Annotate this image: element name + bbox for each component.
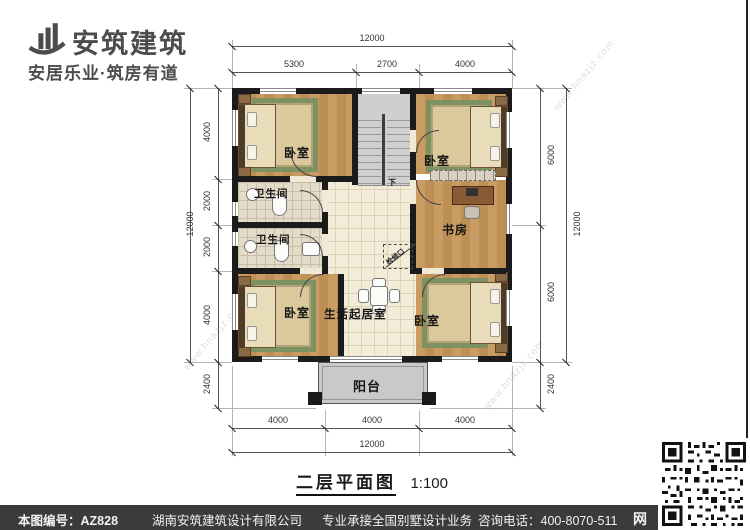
window (232, 232, 238, 246)
page-edge-line (746, 0, 748, 438)
stair-flight-right (387, 120, 410, 185)
nightstand (495, 167, 508, 177)
desk-chair (464, 206, 480, 219)
footer-bar: 本图编号：AZ828 湖南安筑建筑设计有限公司 专业承接全国别墅设计业务 咨询电… (0, 505, 750, 530)
company-name: 湖南安筑建筑设计有限公司 (152, 510, 302, 529)
balcony: 阳台 (318, 362, 428, 404)
dimension-line-bottom-total (232, 452, 512, 453)
dim-bottom-seg: 4000 (248, 415, 308, 425)
nightstand (238, 276, 251, 286)
window (506, 112, 512, 148)
brand-tagline: 安居乐业·筑房有道 (28, 59, 179, 84)
dim-right-total: 12000 (572, 194, 582, 254)
dim-left-seg: 4000 (202, 285, 212, 345)
room-label-bedroom-tr: 卧室 (424, 152, 450, 169)
drawing-title: 二层平面图 (296, 473, 396, 496)
drawing-number: 本图编号：AZ828 (18, 510, 118, 529)
floor-plan: 检修口 卧室 卫生间 卫生间 卧室 生活起居室 卧室 书房 卧室 下 (232, 88, 512, 362)
phone-text: 咨询电话：400-8070-511 (478, 510, 617, 529)
dimension-line-bottom-segments (232, 428, 512, 429)
extension-line (325, 410, 326, 456)
dim-top-seg: 4000 (435, 59, 495, 69)
dim-right-below: 2400 (546, 354, 556, 414)
window (506, 290, 512, 326)
extension-line (419, 64, 420, 88)
dim-top-total: 12000 (342, 33, 402, 43)
brand-name: 安筑建筑 (72, 22, 188, 61)
bed-top-right (470, 106, 508, 168)
stair-flight-left (358, 120, 381, 185)
dimension-line-top-segments (232, 72, 512, 73)
service-text: 专业承接全国别墅设计业务 (322, 510, 472, 529)
bed-top-left (238, 104, 276, 168)
dim-bottom-total: 12000 (342, 439, 402, 449)
stair-down-label: 下 (388, 177, 396, 188)
dimension-line-right-segments (540, 88, 541, 408)
qr-code (658, 438, 750, 530)
bed-bottom-left (238, 286, 276, 348)
stair-rail (382, 114, 385, 185)
window (232, 294, 238, 330)
dim-right-seg: 6000 (546, 125, 556, 185)
dim-left-total: 12000 (185, 194, 195, 254)
extension-line (212, 271, 232, 272)
extension-line (212, 225, 232, 226)
dimension-line-left-segments (218, 88, 219, 408)
dimension-line-right-total (566, 88, 567, 362)
web-glyph: 网 (633, 509, 647, 529)
balcony-pier (422, 392, 436, 405)
extension-line (419, 410, 420, 456)
wall (352, 94, 358, 185)
floor-plan-page: 安筑建筑 安居乐业·筑房有道 www.hnazjz.com www.hnazjz… (0, 0, 750, 530)
nightstand (495, 96, 508, 106)
staircase (358, 94, 410, 186)
room-label-living: 生活起居室 (324, 306, 387, 322)
dim-top-seg: 2700 (357, 59, 417, 69)
bed-bottom-right (470, 282, 508, 344)
window (260, 88, 296, 94)
window (442, 356, 478, 362)
window (232, 110, 238, 146)
extension-line (512, 366, 513, 456)
extension-line (232, 366, 233, 456)
nightstand (238, 347, 251, 357)
drawing-scale: 1:100 (410, 475, 448, 492)
watermark: www.hnazjz.com (552, 38, 617, 113)
window (362, 88, 400, 94)
dim-top-seg: 5300 (264, 59, 324, 69)
room-label-bath-2: 卫生间 (256, 232, 291, 247)
extension-line (212, 179, 232, 180)
extension-line (430, 408, 546, 409)
window (232, 202, 238, 216)
wall (238, 222, 322, 228)
dimension-line-top-total (232, 46, 512, 47)
access-hatch: 检修口 (383, 244, 413, 269)
dim-right-seg: 6000 (546, 262, 556, 322)
window (262, 356, 298, 362)
room-label-bedroom-tl: 卧室 (284, 144, 310, 161)
drawing-title-block: 二层平面图 1:100 (232, 468, 512, 493)
extension-line (212, 408, 316, 409)
dim-left-seg: 2000 (202, 217, 212, 277)
room-label-balcony: 阳台 (353, 376, 381, 395)
nightstand (495, 343, 508, 353)
dim-left-below: 2400 (202, 354, 212, 414)
window (434, 88, 472, 94)
nightstand (238, 94, 251, 104)
room-label-bedroom-br: 卧室 (414, 312, 440, 329)
room-label-study: 书房 (442, 221, 468, 238)
window (506, 204, 512, 234)
room-label-bath-1: 卫生间 (254, 186, 289, 201)
room-label-bedroom-bl: 卧室 (284, 304, 310, 321)
balcony-pier (308, 392, 322, 405)
company-logo-icon (24, 16, 70, 62)
dim-bottom-seg: 4000 (435, 415, 495, 425)
dim-bottom-seg: 4000 (342, 415, 402, 425)
desk-monitor (466, 188, 478, 196)
dim-left-seg: 4000 (202, 102, 212, 162)
